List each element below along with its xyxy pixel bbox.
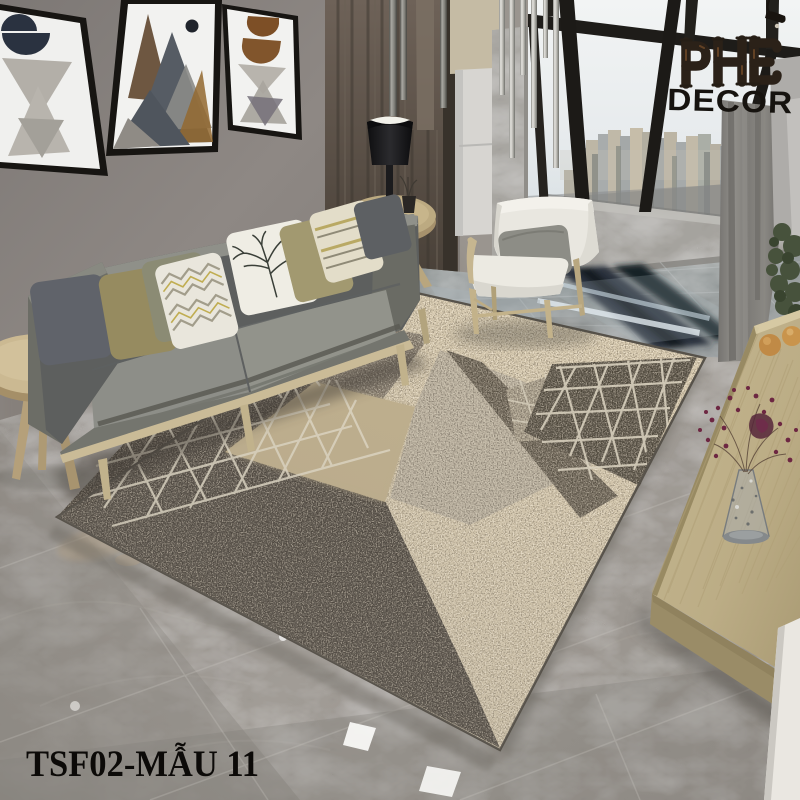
svg-text:TSF02-MẪU 11: TSF02-MẪU 11 bbox=[26, 741, 259, 785]
svg-text:DECOR: DECOR bbox=[667, 82, 794, 120]
